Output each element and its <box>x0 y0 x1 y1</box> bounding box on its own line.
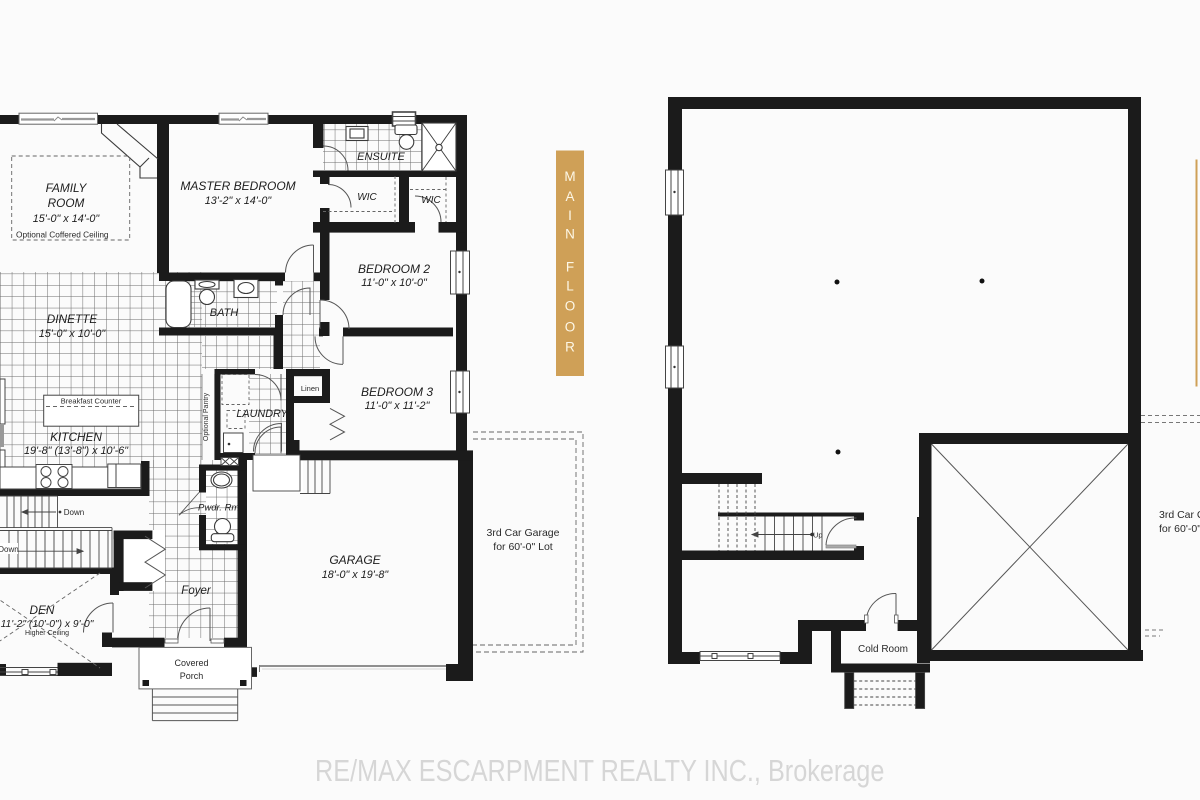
svg-text:3rd Car Garage: 3rd Car Garage <box>487 527 560 539</box>
svg-text:N: N <box>565 227 575 242</box>
svg-text:A: A <box>565 189 574 204</box>
svg-text:R: R <box>565 340 575 355</box>
svg-text:BEDROOM 3: BEDROOM 3 <box>361 385 433 399</box>
svg-text:O: O <box>565 299 576 314</box>
svg-text:Linen: Linen <box>301 384 319 393</box>
svg-text:ENSUITE: ENSUITE <box>357 151 405 163</box>
svg-text:WIC: WIC <box>421 195 441 206</box>
svg-text:13'-2" x 14'-0": 13'-2" x 14'-0" <box>205 195 273 207</box>
svg-text:F: F <box>566 260 574 275</box>
svg-text:19'-8" (13'-8") x 10'-6": 19'-8" (13'-8") x 10'-6" <box>24 445 129 457</box>
svg-text:3rd Car Garage: 3rd Car Garage <box>1159 509 1200 521</box>
svg-text:MASTER BEDROOM: MASTER BEDROOM <box>180 179 295 193</box>
svg-text:DEN: DEN <box>30 603 55 617</box>
svg-text:DINETTE: DINETTE <box>47 312 98 326</box>
svg-text:11'-0" x 10'-0": 11'-0" x 10'-0" <box>361 277 428 289</box>
svg-text:Higher Ceiling: Higher Ceiling <box>25 630 69 637</box>
svg-text:BEDROOM 2: BEDROOM 2 <box>358 262 430 276</box>
svg-text:Pwdr. Rm.: Pwdr. Rm. <box>198 503 242 514</box>
svg-text:Cold Room: Cold Room <box>858 644 908 655</box>
svg-text:GARAGE: GARAGE <box>329 553 381 567</box>
svg-text:L: L <box>566 279 574 294</box>
svg-text:FAMILY: FAMILY <box>46 181 88 195</box>
svg-text:LAUNDRY: LAUNDRY <box>236 408 288 420</box>
svg-text:Down: Down <box>0 545 19 554</box>
svg-text:11'-0" x 11'-2": 11'-0" x 11'-2" <box>365 400 431 412</box>
svg-text:WIC: WIC <box>357 192 377 203</box>
svg-text:KITCHEN: KITCHEN <box>50 430 102 444</box>
svg-text:Optional Pantry: Optional Pantry <box>203 392 210 441</box>
svg-text:11'-2" (10'-0") x 9'-0": 11'-2" (10'-0") x 9'-0" <box>1 619 95 630</box>
svg-text:18'-0" x 19'-8": 18'-0" x 19'-8" <box>322 569 390 581</box>
svg-text:Breakfast Counter: Breakfast Counter <box>61 397 122 406</box>
svg-text:O: O <box>565 320 576 335</box>
svg-text:M: M <box>564 169 575 184</box>
svg-text:for 60'-0" Lot: for 60'-0" Lot <box>1159 523 1200 535</box>
svg-text:for 60'-0" Lot: for 60'-0" Lot <box>493 541 553 553</box>
svg-text:15'-0" x 14'-0": 15'-0" x 14'-0" <box>33 213 101 225</box>
svg-text:Foyer: Foyer <box>181 585 212 597</box>
svg-text:Optional Coffered Ceiling: Optional Coffered Ceiling <box>16 230 109 240</box>
svg-text:ROOM: ROOM <box>48 196 85 210</box>
svg-text:Porch: Porch <box>180 671 204 681</box>
svg-text:Covered: Covered <box>174 658 208 668</box>
svg-text:I: I <box>568 208 572 223</box>
svg-text:Up: Up <box>813 531 823 540</box>
svg-text:Down: Down <box>64 508 84 517</box>
svg-text:BATH: BATH <box>210 307 239 319</box>
svg-text:15'-0" x 10'-0": 15'-0" x 10'-0" <box>39 328 107 340</box>
